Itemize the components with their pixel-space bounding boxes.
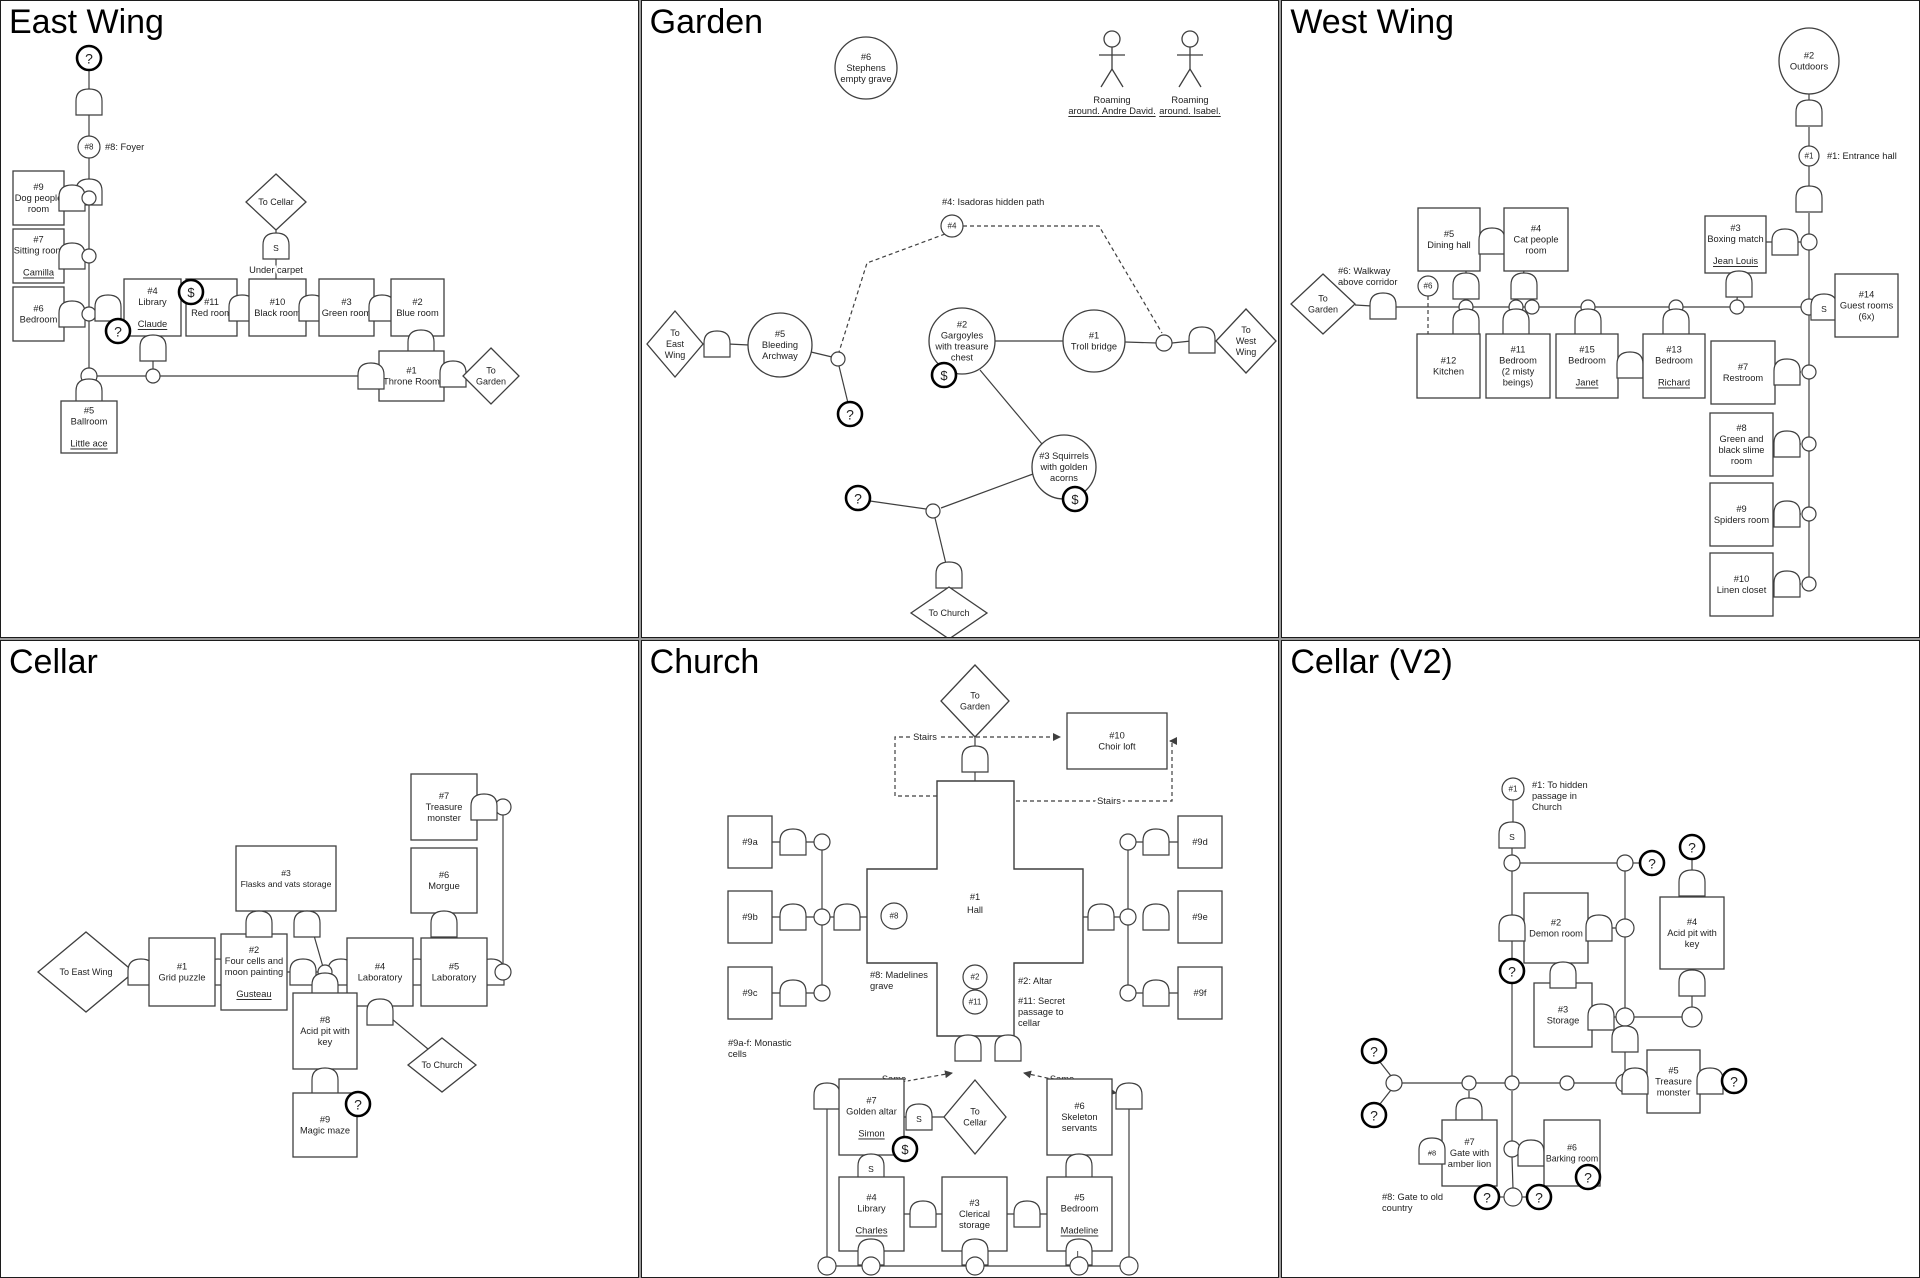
diagram-text: Sitting room xyxy=(14,246,64,256)
diagram-text: Dog people xyxy=(15,193,63,203)
diagram-text: Green room xyxy=(322,308,372,318)
door-arch-icon[interactable] xyxy=(1612,1026,1638,1052)
door-arch-icon[interactable] xyxy=(910,1201,936,1227)
diagram-text: ? xyxy=(1730,1074,1738,1090)
junction-node[interactable] xyxy=(926,504,940,518)
diagram-text: #9 xyxy=(33,182,43,192)
door-arch-icon[interactable] xyxy=(1550,962,1576,988)
door-arch-icon[interactable] xyxy=(1143,904,1169,930)
diagram-text: cellar xyxy=(1018,1018,1040,1028)
junction-node[interactable] xyxy=(814,834,830,850)
cellar-v2-diagram-canvas[interactable]: #1#1: To hiddenpassage inChurchS?#2Demon… xyxy=(1282,641,1920,1277)
door-arch-icon[interactable] xyxy=(95,295,121,321)
diagram-text: #5 xyxy=(1444,229,1454,239)
diagram-text: #15 xyxy=(1580,345,1596,355)
diagram-text: #7 xyxy=(1465,1137,1475,1147)
diagram-text: #2: Altar xyxy=(1018,976,1052,986)
diagram-text: Janet xyxy=(1576,378,1599,388)
door-arch-icon[interactable] xyxy=(1617,352,1643,378)
diagram-text: Library xyxy=(857,1204,886,1214)
junction-node[interactable] xyxy=(818,1257,836,1275)
diagram-text: #6 xyxy=(439,870,449,880)
diagram-text: #3 xyxy=(1731,223,1741,233)
door-arch-icon[interactable] xyxy=(140,335,166,361)
diagram-text: Outdoors xyxy=(1790,62,1829,72)
diagram-text: Blue room xyxy=(396,308,439,318)
junction-node[interactable] xyxy=(814,909,830,925)
diagram-text: cells xyxy=(728,1049,747,1059)
diagram-text: #4 xyxy=(947,222,956,231)
door-arch-icon[interactable] xyxy=(246,911,272,937)
diagram-text: room xyxy=(1526,246,1547,256)
diagram-text: Flasks and vats storage xyxy=(241,879,332,889)
diagram-text: Stephens xyxy=(846,63,886,73)
door-arch-icon[interactable] xyxy=(834,904,860,930)
diagram-text: passage to xyxy=(1018,1007,1064,1017)
connector-line xyxy=(980,370,1042,444)
diagram-text: grave xyxy=(870,981,893,991)
church-diagram-canvas[interactable]: ToGarden#10Choir loftStairsStairs#1Hall#… xyxy=(642,641,1280,1277)
diagram-text: Ballroom xyxy=(71,417,108,427)
junction-node[interactable] xyxy=(495,964,511,980)
diagram-text: #4 xyxy=(1531,224,1541,234)
diagram-text: Simon xyxy=(858,1129,884,1139)
junction-node[interactable] xyxy=(1120,1257,1138,1275)
diagram-text: ? xyxy=(1648,856,1656,872)
junction-node[interactable] xyxy=(1560,1076,1574,1090)
diagram-text: Kitchen xyxy=(1433,367,1464,377)
diagram-text: Garden xyxy=(476,377,506,387)
diagram-text: Morgue xyxy=(428,881,460,891)
junction-node[interactable] xyxy=(1156,335,1172,351)
door-arch-icon[interactable] xyxy=(814,1083,840,1109)
door-arch-icon[interactable] xyxy=(59,301,85,327)
junction-node[interactable] xyxy=(1802,437,1816,451)
diagram-text: passage in xyxy=(1532,791,1577,801)
diagram-text: #11 xyxy=(1511,345,1526,355)
diagram-text: #9f xyxy=(1193,988,1206,998)
connector-line xyxy=(870,501,926,509)
junction-node[interactable] xyxy=(1386,1075,1402,1091)
diagram-text: #3 xyxy=(341,297,351,307)
map-grid: East Wing ?#8#8: Foyer#9Dog peopleroom#7… xyxy=(0,0,1920,1278)
diagram-text: To Church xyxy=(421,1060,462,1070)
diagram-text: #11: Secret xyxy=(1018,996,1065,1006)
diagram-text: #2 xyxy=(1551,918,1561,928)
door-arch-icon[interactable] xyxy=(1503,309,1529,335)
diagram-text: #10 xyxy=(1734,574,1750,584)
diagram-text: #7 xyxy=(1738,362,1748,372)
junction-node[interactable] xyxy=(82,249,96,263)
diagram-text: #10 xyxy=(270,297,286,307)
junction-node[interactable] xyxy=(1120,909,1136,925)
door-arch-icon[interactable] xyxy=(367,999,393,1025)
diagram-text: Cat people xyxy=(1514,235,1559,245)
person-figure-icon[interactable] xyxy=(1177,31,1203,87)
diagram-text: #4: Isadoras hidden path xyxy=(942,197,1044,207)
diagram-text: To xyxy=(1319,294,1329,304)
door-arch-icon[interactable] xyxy=(440,361,466,387)
diagram-text: To xyxy=(670,328,680,338)
west-wing-diagram-canvas[interactable]: #2Outdoors#1#1: Entrance hall#3Boxing ma… xyxy=(1282,1,1920,637)
diagram-text: amber lion xyxy=(1448,1159,1491,1169)
panel-garden: Garden #6Stephensempty graveRoamingaroun… xyxy=(641,0,1280,638)
door-arch-icon[interactable] xyxy=(1774,571,1800,597)
junction-node[interactable] xyxy=(1120,834,1136,850)
door-arch-icon[interactable] xyxy=(312,1068,338,1094)
junction-node[interactable] xyxy=(1070,1257,1088,1275)
diagram-text: Madeline xyxy=(1060,1226,1098,1236)
diagram-text: $ xyxy=(1071,492,1079,507)
door-arch-icon[interactable] xyxy=(1588,1004,1614,1030)
east-wing-diagram-canvas[interactable]: ?#8#8: Foyer#9Dog peopleroom#7Sitting ro… xyxy=(1,1,639,637)
junction-node[interactable] xyxy=(1682,1007,1702,1027)
diagram-text: Roaming xyxy=(1093,95,1130,105)
diagram-text: ? xyxy=(846,407,854,423)
door-arch-icon[interactable] xyxy=(59,243,85,269)
diagram-text: (6x) xyxy=(1859,312,1875,322)
diagram-text: Little ace xyxy=(70,439,107,449)
door-arch-icon[interactable] xyxy=(704,331,730,357)
panel-cellar-v2: Cellar (V2) #1#1: To hiddenpassage inChu… xyxy=(1281,640,1920,1278)
connector-line xyxy=(963,226,1162,333)
diagram-text: #2 xyxy=(970,973,979,982)
diagram-text: with golden xyxy=(1039,462,1087,472)
door-arch-icon[interactable] xyxy=(1726,271,1752,297)
connector-line xyxy=(839,366,848,403)
diagram-text: #5 xyxy=(1074,1193,1084,1203)
door-arch-icon[interactable] xyxy=(1679,970,1705,996)
door-arch-icon[interactable] xyxy=(294,911,320,937)
diagram-text: monster xyxy=(427,813,461,823)
diagram-text: #1 xyxy=(177,962,187,972)
diagram-text: Linen closet xyxy=(1717,585,1767,595)
diagram-text: beings) xyxy=(1503,378,1534,388)
junction-node[interactable] xyxy=(966,1257,984,1275)
connector-line xyxy=(811,352,832,357)
diagram-text: #8 xyxy=(85,143,94,152)
junction-node[interactable] xyxy=(1802,507,1816,521)
junction-node[interactable] xyxy=(1616,1008,1634,1026)
door-arch-icon[interactable] xyxy=(780,904,806,930)
diagram-text: Dining hall xyxy=(1428,240,1471,250)
panel-title: Cellar xyxy=(9,643,98,682)
panel-title: Garden xyxy=(650,3,763,42)
diagram-text: acorns xyxy=(1050,473,1078,483)
diagram-text: above corridor xyxy=(1338,277,1397,287)
diagram-text: To Cellar xyxy=(258,197,294,207)
diagram-text: #9a xyxy=(742,837,758,847)
door-arch-icon[interactable] xyxy=(1697,1068,1723,1094)
diagram-text: #11 xyxy=(968,998,981,1007)
diagram-text: #1: To hidden xyxy=(1532,780,1588,790)
diagram-text: Grid puzzle xyxy=(158,973,205,983)
door-arch-icon[interactable] xyxy=(1189,327,1215,353)
diagram-text: #12 xyxy=(1441,356,1457,366)
diagram-text: Richard xyxy=(1658,378,1690,388)
door-arch-icon[interactable] xyxy=(1772,229,1798,255)
diagram-text: #2 xyxy=(956,320,966,330)
junction-node[interactable] xyxy=(1802,577,1816,591)
door-arch-icon[interactable] xyxy=(962,746,988,772)
junction-node[interactable] xyxy=(1616,919,1634,937)
diagram-text: #14 xyxy=(1859,290,1875,300)
diagram-text: #7 xyxy=(866,1096,876,1106)
diagram-text: Garden xyxy=(1308,305,1338,315)
diagram-text: chest xyxy=(951,353,974,363)
door-arch-icon[interactable] xyxy=(1143,980,1169,1006)
diagram-text: ? xyxy=(85,51,93,67)
diagram-text: #3 xyxy=(281,868,291,878)
person-figure-icon[interactable] xyxy=(1099,31,1125,87)
diagram-text: Gate with xyxy=(1450,1148,1489,1158)
diagram-text: #9c xyxy=(742,988,757,998)
diagram-text: Charles xyxy=(855,1226,887,1236)
diagram-text: Wing xyxy=(664,350,685,360)
junction-node[interactable] xyxy=(1120,985,1136,1001)
diagram-text: Bedroom xyxy=(20,315,58,325)
diagram-text: #13 xyxy=(1667,345,1683,355)
door-arch-icon[interactable] xyxy=(1066,1154,1092,1180)
door-arch-icon[interactable] xyxy=(358,363,384,389)
door-arch-icon[interactable] xyxy=(1575,309,1601,335)
panel-west-wing: West Wing #2Outdoors#1#1: Entrance hall#… xyxy=(1281,0,1920,638)
diagram-text: Throne Room xyxy=(383,377,440,387)
door-arch-icon[interactable] xyxy=(1796,100,1822,126)
diagram-text: country xyxy=(1382,1203,1413,1213)
diagram-text: #8: Gate to old xyxy=(1382,1192,1443,1202)
diagram-text: ? xyxy=(1508,964,1516,980)
diagram-text: #9b xyxy=(742,912,758,922)
door-arch-icon[interactable] xyxy=(1774,431,1800,457)
door-arch-icon[interactable] xyxy=(1116,1083,1142,1109)
diagram-text: #10 xyxy=(1109,731,1125,741)
diagram-text: #8: Foyer xyxy=(105,142,144,152)
door-arch-icon[interactable] xyxy=(59,185,85,211)
diagram-text: #9e xyxy=(1192,912,1208,922)
diagram-text: Church xyxy=(1532,802,1562,812)
diagram-text: $ xyxy=(901,1142,909,1157)
door-arch-icon[interactable] xyxy=(1499,915,1525,941)
panel-title: Cellar (V2) xyxy=(1290,643,1452,682)
diagram-text: room xyxy=(1731,456,1752,466)
door-arch-icon[interactable] xyxy=(1370,293,1396,319)
diagram-text: storage xyxy=(959,1220,990,1230)
door-arch-icon[interactable] xyxy=(780,980,806,1006)
diagram-text: key xyxy=(1685,939,1700,949)
diagram-text: ? xyxy=(854,491,862,507)
diagram-text: #4 xyxy=(375,962,385,972)
diagram-text: To xyxy=(1241,325,1251,335)
diagram-text: Demon room xyxy=(1529,929,1583,939)
diagram-text: #1 xyxy=(1805,152,1814,161)
diagram-text: #6 xyxy=(33,304,43,314)
diagram-text: Four cells and xyxy=(225,956,283,966)
junction-node[interactable] xyxy=(1462,1076,1476,1090)
diagram-text: Stairs xyxy=(913,732,937,742)
diagram-text: Acid pit with xyxy=(1668,928,1718,938)
connector-line xyxy=(1380,1062,1391,1076)
junction-node[interactable] xyxy=(831,352,845,366)
diagram-text: #8 xyxy=(1428,1149,1436,1158)
door-arch-icon[interactable] xyxy=(1622,1068,1648,1094)
diagram-text: To xyxy=(486,366,496,376)
diagram-text: #1: Entrance hall xyxy=(1827,151,1897,161)
diagram-text: #2 xyxy=(249,945,259,955)
diagram-text: Garden xyxy=(960,702,990,712)
door-arch-icon[interactable] xyxy=(1143,829,1169,855)
diagram-text: around. Isabel. xyxy=(1159,106,1221,116)
door-arch-icon[interactable] xyxy=(1453,273,1479,299)
diagram-text: Treasure xyxy=(1655,1077,1692,1087)
door-arch-icon[interactable] xyxy=(1479,228,1505,254)
diagram-text: #8 xyxy=(320,1015,330,1025)
diagram-text: #2 xyxy=(1804,51,1814,61)
junction-node[interactable] xyxy=(1504,855,1520,871)
diagram-text: Archway xyxy=(762,351,798,361)
diagram-text: Laboratory xyxy=(432,973,477,983)
diagram-text: Red room xyxy=(191,308,232,318)
diagram-text: around. Andre David. xyxy=(1068,106,1155,116)
diagram-text: Wing xyxy=(1235,347,1256,357)
door-arch-icon[interactable] xyxy=(1088,904,1114,930)
panel-title: Church xyxy=(650,643,760,682)
door-arch-icon[interactable] xyxy=(1774,359,1800,385)
door-arch-icon[interactable] xyxy=(1679,870,1705,896)
diagram-text: #3 xyxy=(1558,1005,1568,1015)
diagram-text: #9a-f: Monastic xyxy=(728,1038,792,1048)
diagram-text: empty grave xyxy=(840,74,891,84)
diagram-text: Library xyxy=(138,297,167,307)
door-arch-icon[interactable] xyxy=(936,562,962,588)
diagram-text: ? xyxy=(114,324,122,340)
diagram-text: $ xyxy=(187,285,195,300)
diagram-text: #1 xyxy=(1088,331,1098,341)
cellar-diagram-canvas[interactable]: To East Wing#1Grid puzzle#2Four cells an… xyxy=(1,641,639,1277)
connector-line xyxy=(1172,341,1191,343)
door-arch-icon[interactable] xyxy=(1518,1140,1544,1166)
diagram-text: #8: Madelines xyxy=(870,970,928,980)
junction-node[interactable] xyxy=(1617,855,1633,871)
panel-east-wing: East Wing ?#8#8: Foyer#9Dog peopleroom#7… xyxy=(0,0,639,638)
diagram-text: ? xyxy=(354,1097,362,1113)
diagram-text: #5 xyxy=(1669,1066,1679,1076)
diagram-text: #1 xyxy=(969,892,979,902)
diagram-text: Bedroom xyxy=(1655,356,1693,366)
diagram-text: (2 misty xyxy=(1502,367,1535,377)
door-arch-icon[interactable] xyxy=(1774,501,1800,527)
door-arch-icon[interactable] xyxy=(955,1035,981,1061)
door-arch-icon[interactable] xyxy=(1453,309,1479,335)
diagram-text: Treasure xyxy=(426,802,463,812)
diagram-text: #8 xyxy=(889,912,898,921)
junction-node[interactable] xyxy=(814,985,830,1001)
diagram-text: ? xyxy=(1535,1190,1543,1206)
diagram-text: Boxing match xyxy=(1708,234,1764,244)
connector-line xyxy=(941,474,1033,508)
diagram-text: Choir loft xyxy=(1098,742,1136,752)
diagram-text: room xyxy=(28,204,49,214)
diagram-text: #1 xyxy=(406,366,416,376)
junction-node[interactable] xyxy=(1802,365,1816,379)
diagram-text: Magic maze xyxy=(300,1126,350,1136)
diagram-text: #7 xyxy=(439,791,449,801)
diagram-text: #9 xyxy=(320,1115,330,1125)
diagram-text: S xyxy=(868,1164,874,1174)
diagram-text: ? xyxy=(1688,840,1696,856)
diagram-text: #6 xyxy=(1567,1143,1577,1153)
diagram-text: Black room xyxy=(254,308,301,318)
diagram-text: Troll bridge xyxy=(1071,342,1117,352)
diagram-text: Barking room xyxy=(1546,1154,1598,1164)
door-arch-icon[interactable] xyxy=(1511,273,1537,299)
junction-node[interactable] xyxy=(1525,300,1539,314)
diagram-text: #6: Walkway xyxy=(1338,266,1391,276)
junction-node[interactable] xyxy=(1801,234,1817,250)
diagram-text: #4 xyxy=(147,286,157,296)
door-arch-icon[interactable] xyxy=(1014,1201,1040,1227)
junction-node[interactable] xyxy=(1504,1188,1522,1206)
diagram-text: Jean Louis xyxy=(1713,256,1758,266)
junction-node[interactable] xyxy=(82,191,96,205)
diagram-text: key xyxy=(318,1037,333,1047)
door-arch-icon[interactable] xyxy=(1663,309,1689,335)
diagram-text: #5 xyxy=(774,329,784,339)
junction-node[interactable] xyxy=(862,1257,880,1275)
diagram-text: Storage xyxy=(1547,1016,1580,1026)
door-arch-icon[interactable] xyxy=(431,911,457,937)
junction-node[interactable] xyxy=(1505,1076,1519,1090)
diagram-text: Spiders room xyxy=(1714,515,1770,525)
garden-diagram-canvas[interactable]: #6Stephensempty graveRoamingaround. Andr… xyxy=(642,1,1280,637)
diagram-text: Gargoyles xyxy=(940,331,983,341)
diagram-text: To East Wing xyxy=(59,967,112,977)
diagram-text: ? xyxy=(1584,1170,1592,1186)
diagram-text: Bedroom xyxy=(1568,356,1606,366)
diagram-text: Camilla xyxy=(23,268,55,278)
door-arch-icon[interactable] xyxy=(995,1035,1021,1061)
connector-line xyxy=(1380,1090,1391,1104)
diagram-text: #9d xyxy=(1192,837,1208,847)
diagram-text: Clerical xyxy=(959,1209,990,1219)
diagram-text: Roaming xyxy=(1171,95,1208,105)
door-arch-icon[interactable] xyxy=(1586,915,1612,941)
junction-node[interactable] xyxy=(82,307,96,321)
diagram-text: #5 xyxy=(84,406,94,416)
diagram-text: East xyxy=(666,339,685,349)
junction-node[interactable] xyxy=(146,369,160,383)
diagram-text: moon painting xyxy=(225,967,283,977)
junction-node[interactable] xyxy=(1730,300,1744,314)
diagram-text: Restroom xyxy=(1723,373,1764,383)
diagram-text: Hall xyxy=(967,905,983,915)
panel-title: West Wing xyxy=(1290,3,1454,42)
door-arch-icon[interactable] xyxy=(1796,186,1822,212)
diagram-text: #4 xyxy=(1687,917,1697,927)
connector-line xyxy=(1512,1157,1513,1189)
diagram-text: black slime xyxy=(1719,445,1765,455)
diagram-text: Skeleton xyxy=(1061,1112,1097,1122)
diagram-text: #8 xyxy=(1737,423,1747,433)
diagram-text: West xyxy=(1235,336,1256,346)
door-arch-icon[interactable] xyxy=(780,829,806,855)
door-arch-icon[interactable] xyxy=(76,89,102,115)
door-arch-icon[interactable] xyxy=(471,794,497,820)
diagram-text: Bedroom xyxy=(1499,356,1537,366)
diagram-text: Guest rooms xyxy=(1840,301,1894,311)
diagram-text: S xyxy=(273,243,279,253)
diagram-text: Claude xyxy=(138,319,167,329)
